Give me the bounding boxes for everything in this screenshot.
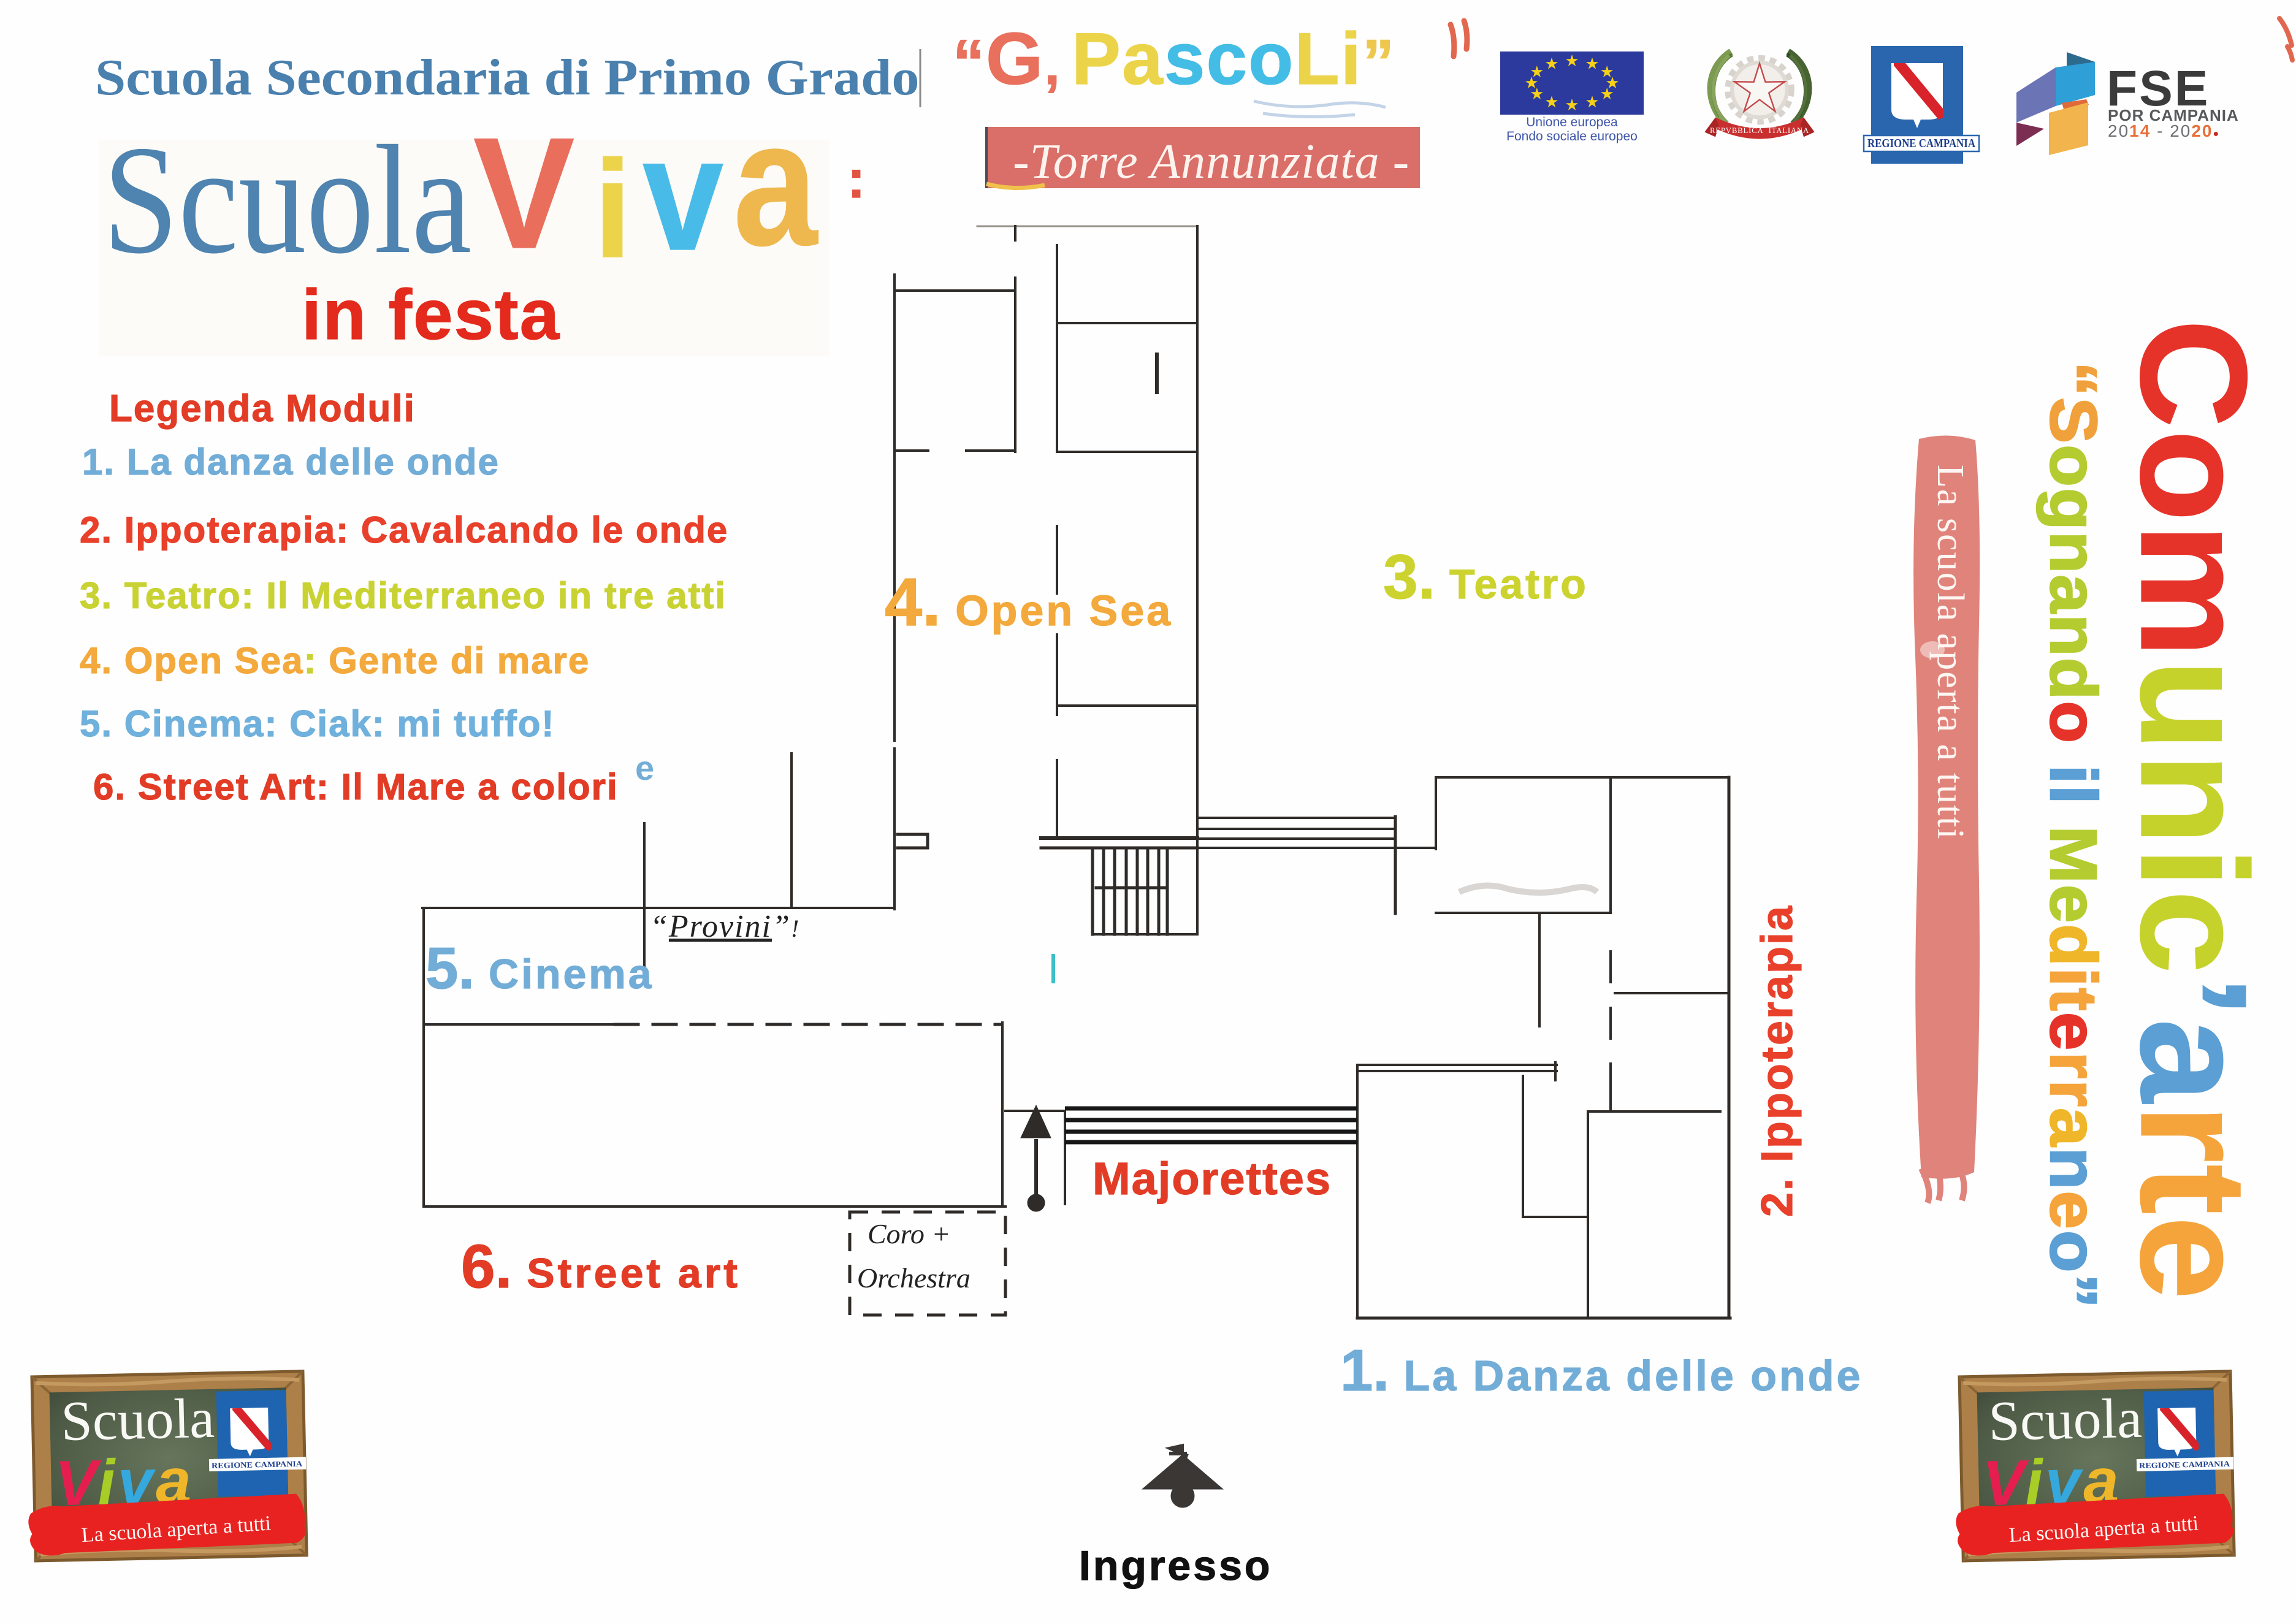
svg-text:REGIONE CAMPANIA: REGIONE CAMPANIA [212, 1459, 303, 1470]
svg-text:REGIONE CAMPANIA: REGIONE CAMPANIA [2139, 1459, 2230, 1470]
svg-text:Scuola: Scuola [60, 1387, 215, 1452]
svg-text:Scuola: Scuola [1988, 1387, 2142, 1452]
